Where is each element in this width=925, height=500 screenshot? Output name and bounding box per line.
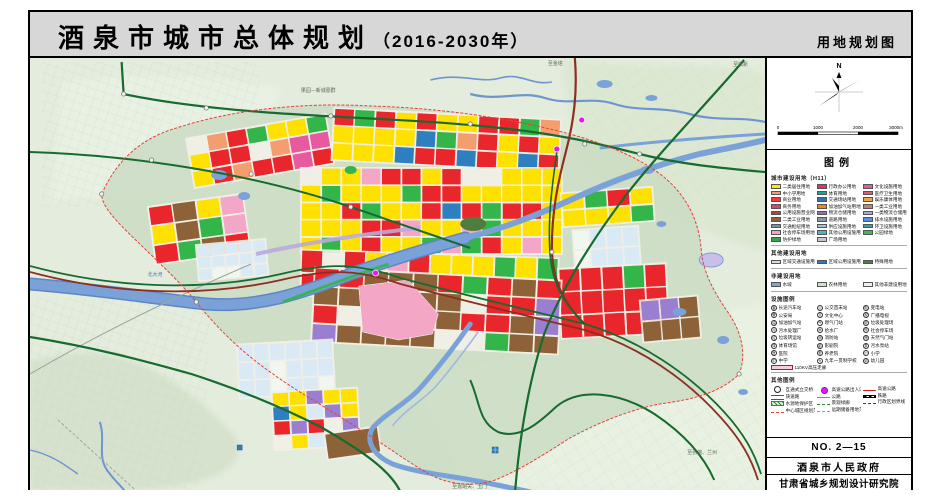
legend-section-landuse: 城市建设用地（H11） 二类居住用地中小学用地商业用地商务用地公用设施营业网点用… (771, 171, 907, 243)
legend-item-label: 体育用地 (829, 191, 847, 196)
legend-item-label: 中小学用地 (783, 191, 806, 196)
page-title: 酒泉市城市总体规划（2016-2030年） (58, 18, 529, 55)
legend-section-title: 非建设用地 (771, 272, 907, 280)
facility-icon: 幼 (863, 358, 869, 364)
hv-corridor-swatch (771, 365, 793, 370)
facility-icon: 油 (771, 320, 777, 326)
legend-swatch (817, 230, 827, 235)
legend-swatch (863, 260, 873, 265)
legend-item: 行政办公用地 (817, 184, 861, 189)
legend-section-noncon: 非建设用地 水域农林用地其他非建设用地 (771, 268, 907, 289)
legend-title: 图例 (767, 150, 911, 171)
facility-icon: 圾 (863, 320, 869, 326)
line-symbol (771, 386, 784, 392)
legend-item-hv: 110KV高压走廊 (771, 365, 907, 370)
facility-item: 圾垃圾处理场 (863, 320, 907, 326)
line-legend-item: 快速路 (771, 394, 815, 400)
legend-item-label: 物流仓储用地 (829, 210, 857, 215)
facility-label: 燃气门站 (825, 320, 843, 325)
facility-label: 公交首末站 (825, 305, 848, 310)
legend-section-other: 其他建设用地 区域交通设施用地区域公用设施用地特殊用地 (771, 245, 907, 266)
line-legend-item: 远期储备用地范围 (817, 407, 861, 412)
legend-item: 加油加气站用地 (817, 204, 861, 209)
title-bar: 酒泉市城市总体规划（2016-2030年） 用地规划图 (30, 12, 911, 58)
facility-item: 停社会停车场 (863, 327, 907, 333)
legend-item: 道路用地 (817, 217, 861, 222)
facility-icon: 医 (771, 350, 777, 356)
legend-item-label: 环卫设施用地 (875, 224, 903, 229)
legend-item: 防护绿地 (771, 237, 815, 242)
legend-swatch (863, 282, 873, 287)
map-label-north-road: 至金塔 (548, 60, 563, 67)
scale-tick: 0 (777, 125, 780, 130)
legend-item-label: 农林用地 (829, 282, 847, 287)
legend-swatch (817, 204, 827, 209)
legend-item-label: 加油加气站用地 (829, 204, 861, 209)
legend-swatch (817, 282, 827, 287)
facility-icon: 小 (863, 350, 869, 356)
facility-label: 加油加气站 (779, 320, 802, 325)
legend-item: 公园绿地 (863, 230, 907, 235)
facility-icon: 文 (817, 312, 823, 318)
legend-item: 体育用地 (817, 191, 861, 196)
facility-label: 中学 (779, 358, 788, 363)
line-legend-item: 高速公路 (863, 386, 907, 391)
legend-item: 环卫设施用地 (863, 224, 907, 229)
legend-item: 中小学用地 (771, 191, 815, 196)
government-name: 酒泉市人民政府 (767, 457, 911, 474)
facility-icon: 客 (771, 305, 777, 311)
facility-label: 垃圾处理场 (871, 320, 894, 325)
facility-label: 影剧院 (825, 343, 839, 348)
line-symbol (771, 412, 784, 413)
legend-item: 特殊用地 (863, 259, 907, 264)
scale-tick: 2000 (853, 125, 864, 130)
legend-item-label: 道路用地 (829, 217, 847, 222)
legend-swatch (771, 191, 781, 196)
facility-item: 客长途汽车站 (771, 305, 815, 311)
line-legend-label: 行政区划界线 (878, 399, 906, 404)
facility-item: 消消防站 (817, 335, 861, 341)
legend-swatch (817, 237, 827, 242)
facility-label: 九年一贯制学校 (825, 358, 857, 363)
north-arrow: N (770, 60, 908, 118)
legend-swatch (771, 230, 781, 235)
facility-icon: 中 (771, 358, 777, 364)
legend-swatch (771, 224, 781, 229)
legend-swatch (863, 184, 873, 189)
legend-item-label: 社会停车场用地 (783, 230, 815, 235)
facility-label: 天然气门站 (871, 335, 894, 340)
facility-label: 消防站 (825, 335, 839, 340)
legend-section-title: 其他建设用地 (771, 249, 907, 257)
facility-icon: 泵 (863, 343, 869, 349)
facility-item: 污污水处理厂 (771, 327, 815, 333)
legend-item: 一类工业用地 (863, 204, 907, 209)
line-legend-item: 互通式立交桥 (771, 386, 815, 392)
facility-label: 医院 (779, 351, 788, 356)
facility-item: 体体育场馆 (771, 343, 815, 349)
legend-swatch (817, 184, 827, 189)
legend-swatch (863, 197, 873, 202)
legend-swatch (771, 237, 781, 242)
line-legend-label: 快速路 (786, 394, 800, 399)
line-symbol (817, 397, 830, 398)
legend-item-label: 公用设施营业网点用地 (783, 210, 816, 215)
scale-tick: 3000m (889, 125, 903, 130)
legend-swatch (771, 217, 781, 222)
facility-item: 气燃气门站 (817, 320, 861, 326)
drawing-frame: 酒泉市城市总体规划（2016-2030年） 用地规划图 (28, 10, 913, 490)
map-label-southeast-dest: 至张掖、兰州 (687, 449, 717, 456)
legend-swatch (771, 211, 781, 216)
facility-icon: 电 (863, 305, 869, 311)
legend-section-title: 城市建设用地（H11） (771, 174, 907, 182)
facility-label: 养老院 (825, 351, 839, 356)
facility-item: 电变电站 (863, 305, 907, 311)
legend-item: 娱乐康体用地 (863, 197, 907, 202)
line-legend-label: 铁路 (878, 393, 887, 398)
facility-item: 幼幼儿园 (863, 358, 907, 364)
line-symbol (771, 395, 784, 400)
legend-item: 区域交通设施用地 (771, 259, 815, 264)
facility-item: 医医院 (771, 350, 815, 356)
facility-item: 水给水厂 (817, 327, 861, 333)
facility-item: 九九年一贯制学校 (817, 358, 861, 364)
facility-item: 老养老院 (817, 350, 861, 356)
legend-section-lines: 其他图例 互通式立交桥快速路水源地保护区中心城区规划范围 高速公路出入口公路景观… (771, 372, 907, 414)
facility-label: 污水泵站 (871, 343, 889, 348)
line-legend-label: 远期储备用地范围 (832, 407, 862, 412)
legend-item-label: 行政办公用地 (829, 184, 857, 189)
map-canvas: 果园—新城墓群 至金塔 至鼎新 北大河 至嘉峪关、玉门 至张掖、兰州 (30, 58, 765, 490)
line-legend-item: 公路 (817, 394, 861, 399)
legend-item-label: 其他非建设用地 (875, 282, 907, 287)
facility-icon: 垃 (771, 335, 777, 341)
legend-swatch (863, 217, 873, 222)
facility-item: 公公交首末站 (817, 305, 861, 311)
facility-label: 体育场馆 (779, 343, 797, 348)
facility-label: 幼儿园 (871, 358, 885, 363)
hv-corridor-label: 110KV高压走廊 (795, 365, 827, 370)
line-symbol (863, 403, 876, 404)
legend-swatch (771, 260, 781, 265)
facility-label: 公安局 (779, 313, 793, 318)
legend-swatch (817, 260, 827, 265)
line-legend-item: 水源地保护区 (771, 401, 815, 406)
legend-swatch (771, 282, 781, 287)
legend-item-label: 交通枢纽用地 (783, 224, 811, 229)
compass-section: N 0 1000 2000 3000m (767, 58, 911, 150)
facility-label: 污水处理厂 (779, 328, 802, 333)
legend-item: 区域公用设施用地 (817, 259, 861, 264)
legend-item: 二类工业用地 (771, 217, 815, 222)
line-legend-item: 中心城区规划范围 (771, 408, 815, 413)
legend-item-label: 供应设施用地 (829, 224, 857, 229)
facility-icon: 燃 (863, 335, 869, 341)
legend-item-label: 交通场站用地 (829, 197, 857, 202)
line-legend-label: 景观绿廊 (832, 400, 850, 405)
legend-item: 农林用地 (817, 282, 861, 287)
legend-item: 商务用地 (771, 204, 815, 209)
facility-item: 影影剧院 (817, 343, 861, 349)
legend-swatch (863, 230, 873, 235)
legend-swatch (771, 184, 781, 189)
facility-icon: 警 (771, 312, 777, 318)
facility-item: 视广播电视 (863, 312, 907, 318)
facility-item: 警公安局 (771, 312, 815, 318)
legend-swatch (817, 224, 827, 229)
map-label-heritage: 果园—新城墓群 (301, 87, 336, 94)
legend-item: 社会停车场用地 (771, 230, 815, 235)
legend-item: 物流仓储用地 (817, 210, 861, 215)
facility-icon: 九 (817, 358, 823, 364)
plan-title-year: （2016-2030年） (373, 32, 529, 51)
facility-label: 变电站 (871, 305, 885, 310)
institute-name: 甘肃省城乡规划设计研究院 (767, 474, 911, 490)
legend-item-label: 二类工业用地 (783, 217, 811, 222)
legend-item-label: 其他公用设施用地 (829, 230, 862, 235)
line-symbol (771, 401, 784, 406)
legend-item-label: 区域交通设施用地 (783, 259, 816, 264)
legend-item-label: 二类居住用地 (783, 184, 811, 189)
legend-item-label: 防护绿地 (783, 237, 801, 242)
north-label: N (836, 63, 841, 70)
legend-item: 广场用地 (817, 237, 861, 242)
legend-swatch (863, 191, 873, 196)
line-legend-label: 公路 (832, 394, 841, 399)
facility-icon: 视 (863, 312, 869, 318)
landuse-map: 果园—新城墓群 至金塔 至鼎新 北大河 至嘉峪关、玉门 至张掖、兰州 (30, 58, 765, 490)
legend-item: 供应设施用地 (817, 224, 861, 229)
legend-item-label: 公园绿地 (875, 230, 893, 235)
legend-item-label: 一类工业用地 (875, 204, 903, 209)
line-symbol (863, 390, 876, 391)
facility-item: 燃天然气门站 (863, 335, 907, 341)
sheet-number: NO. 2—15 (767, 437, 911, 457)
line-legend-item: 行政区划界线 (863, 399, 907, 404)
legend-item: 文化设施用地 (863, 184, 907, 189)
facility-label: 垃圾转运站 (779, 335, 802, 340)
legend-swatch (817, 191, 827, 196)
facility-label: 文化中心 (825, 313, 843, 318)
line-symbol (863, 395, 876, 397)
facility-item: 泵污水泵站 (863, 343, 907, 349)
line-legend-label: 高速公路 (878, 386, 896, 391)
line-symbol (817, 411, 830, 412)
legend-swatch (863, 204, 873, 209)
legend-panel: N 0 1000 2000 3000m (765, 58, 911, 490)
map-label-river: 北大河 (148, 271, 163, 278)
legend-swatch (817, 217, 827, 222)
map-label-northeast-road: 至鼎新 (733, 61, 748, 68)
facility-item: 油加油加气站 (771, 320, 815, 326)
facility-icon: 气 (817, 320, 823, 326)
facility-label: 广播电视 (871, 313, 889, 318)
line-symbol (817, 404, 830, 405)
legend-body: 城市建设用地（H11） 二类居住用地中小学用地商业用地商务用地公用设施营业网点用… (767, 171, 911, 415)
facility-item: 中中学 (771, 358, 815, 364)
legend-item-label: 一类物流仓储用地 (875, 210, 908, 215)
plan-title-text: 酒泉市城市总体规划 (58, 23, 373, 53)
legend-section-title: 设施图例 (771, 295, 907, 303)
line-legend-item: 铁路 (863, 393, 907, 398)
line-legend-item: 高速公路出入口 (817, 386, 861, 392)
line-legend-label: 水源地保护区 (786, 401, 814, 406)
line-legend-item: 景观绿廊 (817, 400, 861, 405)
facility-icon: 水 (817, 327, 823, 333)
map-subtitle: 用地规划图 (817, 32, 897, 51)
facility-item: 垃垃圾转运站 (771, 335, 815, 341)
scale-bar: 0 1000 2000 3000m (770, 123, 908, 141)
legend-item: 其他公用设施用地 (817, 230, 861, 235)
facility-item: 文文化中心 (817, 312, 861, 318)
facility-icon: 体 (771, 343, 777, 349)
legend-item: 公用设施营业网点用地 (771, 210, 815, 215)
legend-item-label: 广场用地 (829, 237, 847, 242)
legend-item-label: 文化设施用地 (875, 184, 903, 189)
legend-item-label: 娱乐康体用地 (875, 197, 903, 202)
legend-swatch (817, 211, 827, 216)
facility-label: 给水厂 (825, 328, 839, 333)
facility-icon: 影 (817, 343, 823, 349)
map-label-southwest-dest: 至嘉峪关、玉门 (452, 483, 487, 490)
legend-item-label: 商务用地 (783, 204, 801, 209)
legend-item: 二类居住用地 (771, 184, 815, 189)
line-legend-label: 中心城区规划范围 (786, 408, 816, 413)
legend-item: 交通场站用地 (817, 197, 861, 202)
legend-swatch (771, 197, 781, 202)
legend-item-label: 区域公用设施用地 (829, 259, 862, 264)
facility-icon: 老 (817, 350, 823, 356)
line-symbol (817, 386, 830, 392)
legend-item-label: 排水设施用地 (875, 217, 903, 222)
legend-item: 交通枢纽用地 (771, 224, 815, 229)
legend-swatch (863, 224, 873, 229)
legend-item: 其他非建设用地 (863, 282, 907, 287)
facility-item: 小小学 (863, 350, 907, 356)
legend-swatch (863, 211, 873, 216)
legend-swatch (817, 197, 827, 202)
legend-item: 医疗卫生用地 (863, 191, 907, 196)
facility-label: 小学 (871, 351, 880, 356)
plan-sheet: 酒泉市城市总体规划（2016-2030年） 用地规划图 (0, 0, 925, 500)
facility-icon: 消 (817, 335, 823, 341)
facility-label: 社会停车场 (871, 328, 894, 333)
legend-item-label: 特殊用地 (875, 259, 893, 264)
scale-tick: 1000 (813, 125, 824, 130)
facility-icon: 污 (771, 327, 777, 333)
legend-item: 一类物流仓储用地 (863, 210, 907, 215)
legend-section-title: 其他图例 (771, 376, 907, 384)
legend-item-label: 商业用地 (783, 197, 801, 202)
line-legend-label: 互通式立交桥 (786, 387, 814, 392)
legend-item: 排水设施用地 (863, 217, 907, 222)
legend-swatch (771, 204, 781, 209)
title-block: NO. 2—15 酒泉市人民政府 甘肃省城乡规划设计研究院 (767, 437, 911, 490)
legend-item-label: 水域 (783, 282, 792, 287)
legend-item-label: 医疗卫生用地 (875, 191, 903, 196)
legend-item: 水域 (771, 282, 815, 287)
legend-section-facilities: 设施图例 客长途汽车站警公安局油加油加气站污污水处理厂垃垃圾转运站体体育场馆医医… (771, 291, 907, 371)
line-legend-label: 高速公路出入口 (832, 387, 862, 392)
facility-label: 长途汽车站 (779, 305, 802, 310)
facility-icon: 停 (863, 327, 869, 333)
facility-icon: 公 (817, 305, 823, 311)
legend-item: 商业用地 (771, 197, 815, 202)
